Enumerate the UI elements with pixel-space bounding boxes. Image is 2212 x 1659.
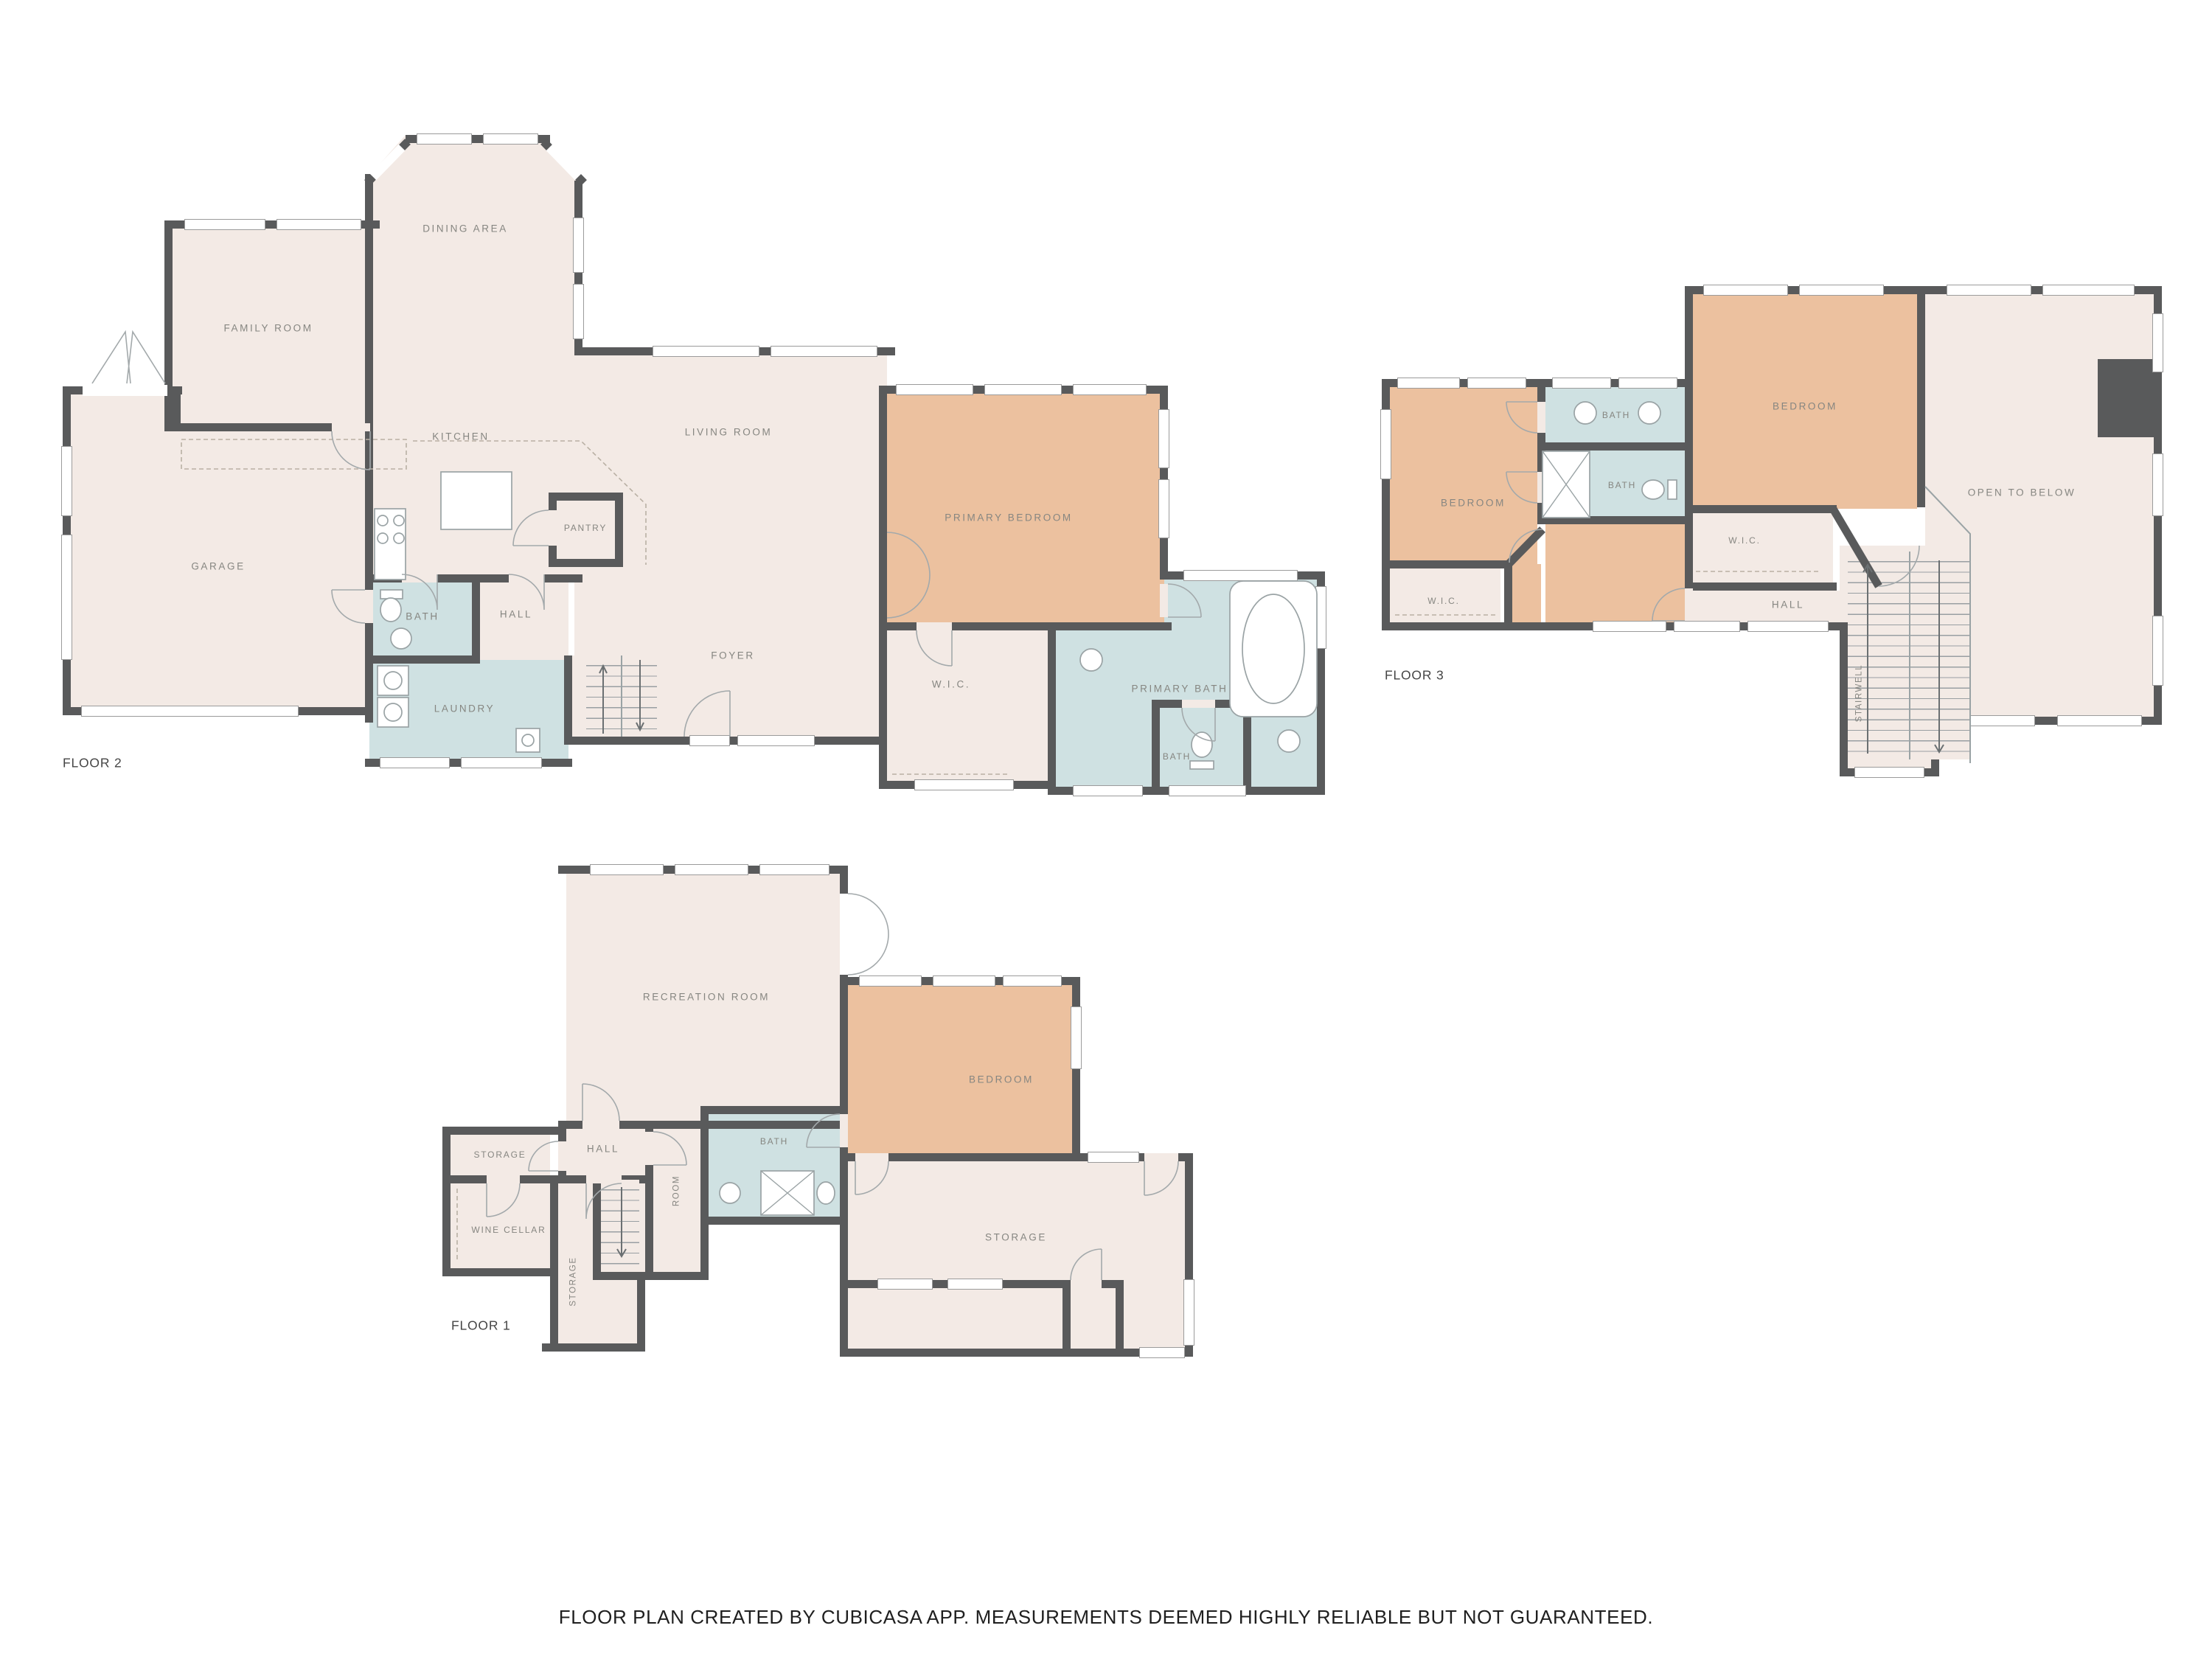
floor2-tag: FLOOR 2 — [63, 756, 122, 771]
room-label-wic-right: W.I.C. — [1728, 536, 1760, 545]
room-label-living-room: LIVING ROOM — [685, 427, 773, 437]
room-label-stairwell: STAIRWELL — [1855, 664, 1864, 723]
room-label-laundry: LAUNDRY — [434, 703, 495, 714]
room-label-room: ROOM — [672, 1175, 681, 1206]
floor-plan-page: { "colors":{"wall":"#595a5b","cream":"#f… — [0, 0, 2212, 1659]
room-label-dining-area: DINING AREA — [422, 223, 508, 234]
room-label-bath1: BATH — [760, 1137, 788, 1146]
room-label-foyer: FOYER — [711, 650, 755, 661]
room-label-bath-top: BATH — [1602, 411, 1630, 420]
floor3-tag: FLOOR 3 — [1385, 668, 1444, 684]
room-label-hall1: HALL — [587, 1144, 619, 1154]
room-label-bedroom1: BEDROOM — [969, 1074, 1034, 1085]
room-label-storage-strip: STORAGE — [569, 1256, 578, 1306]
room-label-primary-bath: PRIMARY BATH — [1132, 684, 1228, 694]
room-label-bath: BATH — [406, 611, 439, 622]
room-label-bedroom-left: BEDROOM — [1441, 498, 1506, 508]
room-label-wine-cellar: WINE CELLAR — [471, 1225, 546, 1234]
room-label-family-room: FAMILY ROOM — [223, 323, 313, 333]
room-label-wic-left: W.I.C. — [1427, 597, 1459, 605]
fixtures-overlay — [0, 0, 2212, 1659]
room-label-bath-mid: BATH — [1608, 481, 1636, 490]
room-label-bedroom-right: BEDROOM — [1773, 401, 1837, 411]
room-label-hall3: HALL — [1772, 599, 1804, 610]
room-label-garage: GARAGE — [191, 561, 245, 571]
room-label-storage-big: STORAGE — [985, 1232, 1047, 1242]
room-label-bath-small: BATH — [1163, 752, 1191, 761]
room-label-open-to-below: OPEN TO BELOW — [1968, 487, 2076, 498]
footer-disclaimer: FLOOR PLAN CREATED BY CUBICASA APP. MEAS… — [0, 1606, 2212, 1629]
room-label-storage-small: STORAGE — [473, 1150, 526, 1159]
room-label-hall: HALL — [500, 609, 532, 619]
room-label-pantry: PANTRY — [564, 524, 607, 532]
floor1-tag: FLOOR 1 — [451, 1318, 510, 1334]
room-label-recreation: RECREATION ROOM — [643, 992, 770, 1002]
room-label-primary-bedroom: PRIMARY BEDROOM — [945, 512, 1073, 523]
room-label-wic: W.I.C. — [932, 679, 970, 689]
room-label-kitchen: KITCHEN — [432, 431, 489, 442]
